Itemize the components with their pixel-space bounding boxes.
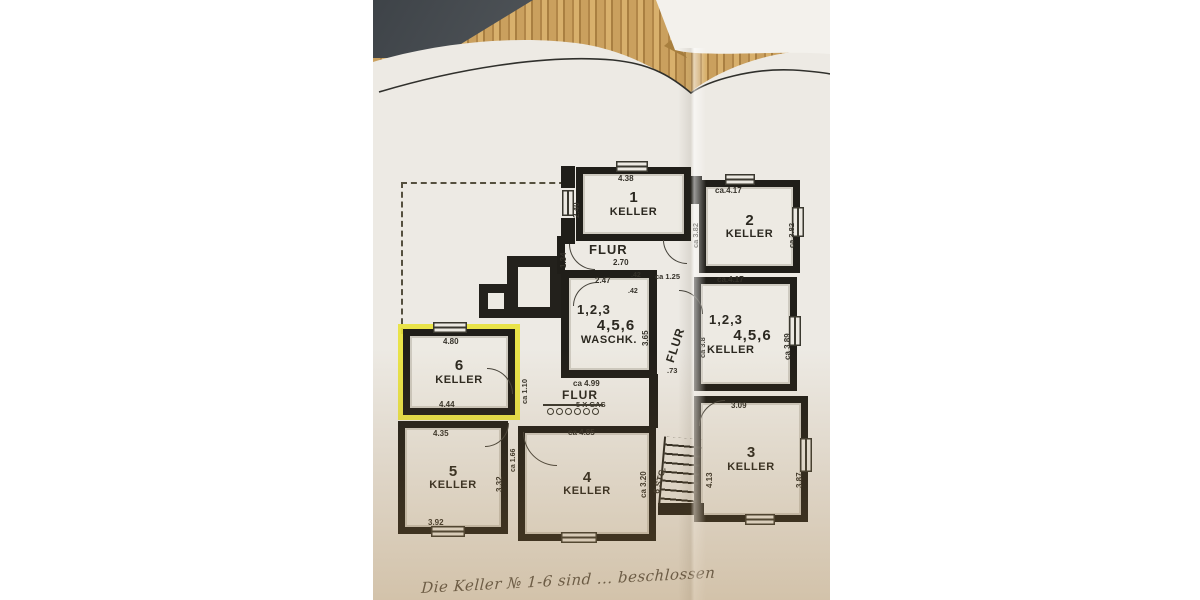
room-3-dim-top: 3.09 <box>731 401 747 410</box>
room-5-dim-bottom: 3.92 <box>428 518 444 527</box>
gas-meter-icon <box>574 408 581 415</box>
shaft-small <box>479 284 513 318</box>
room-3-number: 3 <box>747 445 755 461</box>
flur-vertical-door-dim: .73 <box>667 366 677 375</box>
room-4-dim-right: ca 3.20 <box>639 471 648 498</box>
room-6-label: KELLER <box>435 374 483 386</box>
keller-shared-dim-left: ca 3.8 <box>698 337 707 358</box>
waschk-label: WASCHK. <box>581 334 637 346</box>
keller-shared-numbers-line1: 1,2,3 <box>709 312 743 327</box>
room-2-dim-right: ca 3.82 <box>787 223 796 248</box>
room-4-dim-top: ca 4.85 <box>568 428 595 437</box>
flur-mid-dim-left: ca 1.10 <box>520 379 529 404</box>
window-symbol <box>800 438 812 472</box>
room-2-dim-left: ca 3.82 <box>691 223 700 248</box>
gas-meter-icon <box>556 408 563 415</box>
window-symbol <box>433 322 467 333</box>
room-5-label: KELLER <box>429 479 477 491</box>
window-symbol <box>725 174 755 185</box>
flur-mid-dim-top: ca 4.99 <box>573 379 600 388</box>
mid-dim-3: .42 <box>628 288 638 295</box>
flur-vertical-label: FLUR <box>663 326 687 365</box>
keller-shared-dim-right: ca 3.89 <box>783 333 792 360</box>
waschk-numbers-line2: 4,5,6 <box>597 317 635 334</box>
gas-meter-icon <box>547 408 554 415</box>
room-5-dim-right: 3.32 <box>495 476 504 492</box>
room-1-label: KELLER <box>610 206 658 218</box>
wall-segment <box>686 176 702 204</box>
keller-shared-label: KELLER <box>707 344 755 356</box>
screenshot-canvas: 1 KELLER 2 KELLER 1,2,3 4,5,6 WASCHK. 1,… <box>0 0 1200 600</box>
window-symbol <box>745 514 775 525</box>
room-1-dim-left: 2.40 <box>572 202 581 218</box>
gas-meter-icon <box>583 408 590 415</box>
window-symbol <box>616 161 648 172</box>
door-arc <box>663 240 687 264</box>
gas-meter-icon <box>565 408 572 415</box>
flur-top-dim-left: 1.34 <box>559 252 568 268</box>
room-6-dim-top: 4.80 <box>443 337 459 346</box>
keller-shared-numbers-line2: 4,5,6 <box>733 327 771 344</box>
window-symbol <box>561 532 597 543</box>
mid-dim-1: 2.47 <box>595 276 611 285</box>
room-3-label: KELLER <box>727 461 775 473</box>
room-waschkueche: 1,2,3 4,5,6 WASCHK. <box>561 270 657 378</box>
wall-segment <box>561 166 575 188</box>
wall-segment <box>561 218 575 244</box>
gas-meter-icon <box>592 408 599 415</box>
room-5-dim-outer: ca 1.66 <box>510 449 517 472</box>
window-symbol <box>431 526 465 537</box>
room-1-number: 1 <box>629 190 637 206</box>
gas-meter-row <box>547 408 599 415</box>
flur-top-label: FLUR <box>589 242 628 257</box>
room-2-number: 2 <box>745 213 753 229</box>
floor-plan: 1 KELLER 2 KELLER 1,2,3 4,5,6 WASCHK. 1,… <box>373 0 830 600</box>
room-5-number: 5 <box>449 464 457 480</box>
room-5-dim-top: 4.35 <box>433 429 449 438</box>
room-4-label: KELLER <box>563 485 611 497</box>
mid-dim-2: .42 <box>631 272 641 279</box>
room-2-label: KELLER <box>726 228 774 240</box>
wall-segment <box>649 374 658 428</box>
room-2-dim-bottom: ca.4.17 <box>717 275 744 284</box>
photo-of-floor-plan: 1 KELLER 2 KELLER 1,2,3 4,5,6 WASCHK. 1,… <box>373 0 830 600</box>
shaft-large <box>507 256 561 318</box>
room-1-dim-top: 4.38 <box>618 174 634 183</box>
room-3-dim-left: 4.13 <box>705 472 714 488</box>
room-6-number: 6 <box>455 358 463 374</box>
room-4-number: 4 <box>583 470 591 486</box>
room-6-dim-bottom: 4.44 <box>439 400 455 409</box>
room-3-dim-right: 3.87 <box>795 472 804 488</box>
room-2-dim-top: ca.4.17 <box>715 186 742 195</box>
room-keller-shared: 1,2,3 4,5,6 KELLER <box>694 277 797 391</box>
mid-dim-4: ca 1.25 <box>655 272 680 281</box>
flur-top-dim: 2.70 <box>613 258 629 267</box>
waschk-dim-right: 3.65 <box>641 330 650 346</box>
